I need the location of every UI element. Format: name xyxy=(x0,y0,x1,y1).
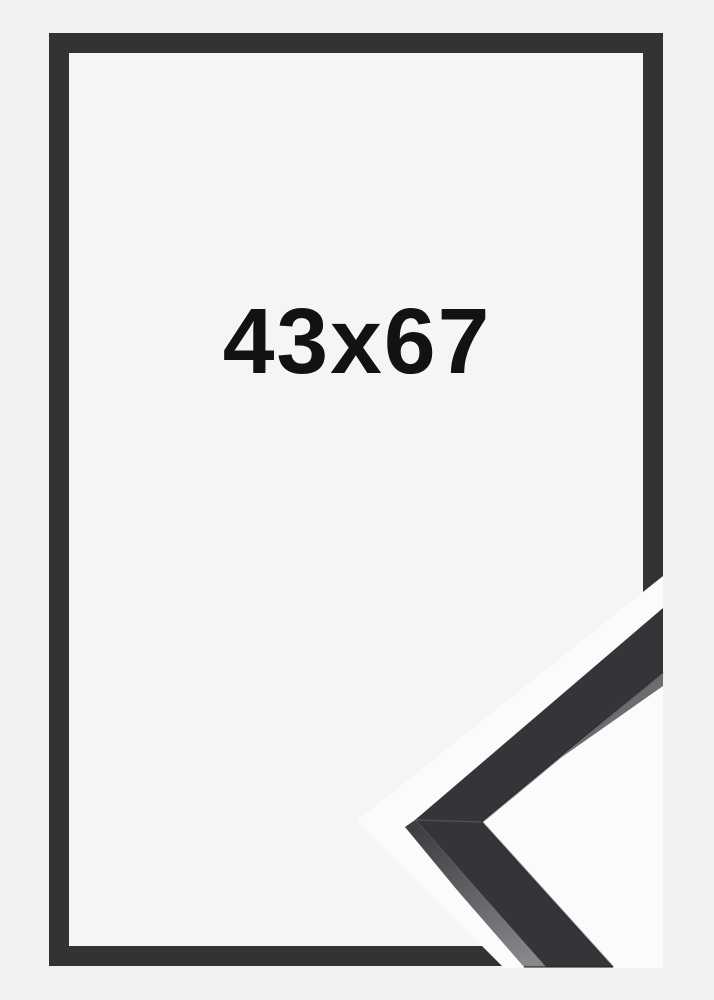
product-image: 43x67 xyxy=(0,0,714,1000)
size-label: 43x67 xyxy=(0,295,714,388)
frame-product-scene xyxy=(0,0,714,1000)
